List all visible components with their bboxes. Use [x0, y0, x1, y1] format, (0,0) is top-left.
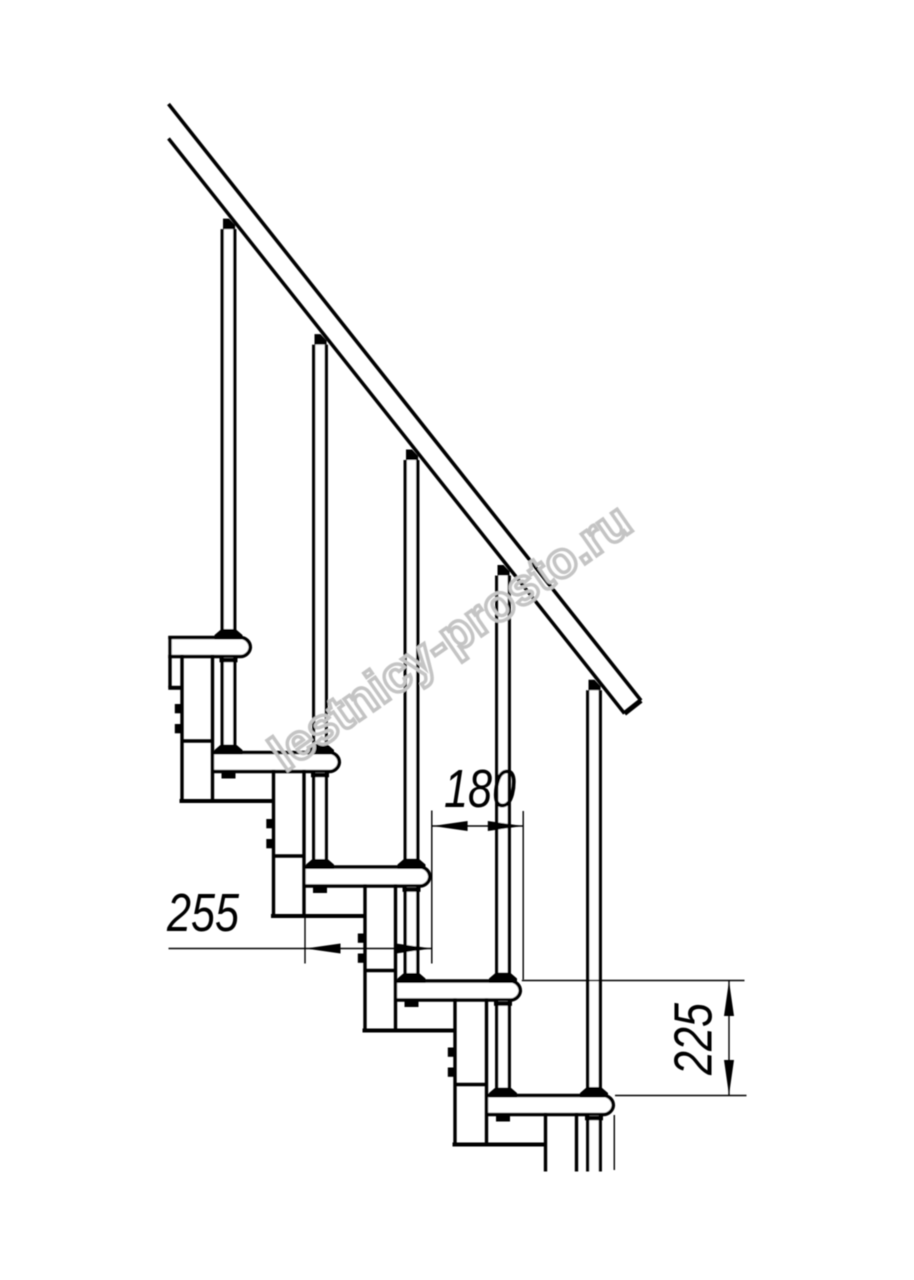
svg-text:180: 180	[444, 760, 516, 820]
svg-text:225: 225	[664, 1002, 724, 1076]
svg-text:255: 255	[166, 884, 240, 944]
